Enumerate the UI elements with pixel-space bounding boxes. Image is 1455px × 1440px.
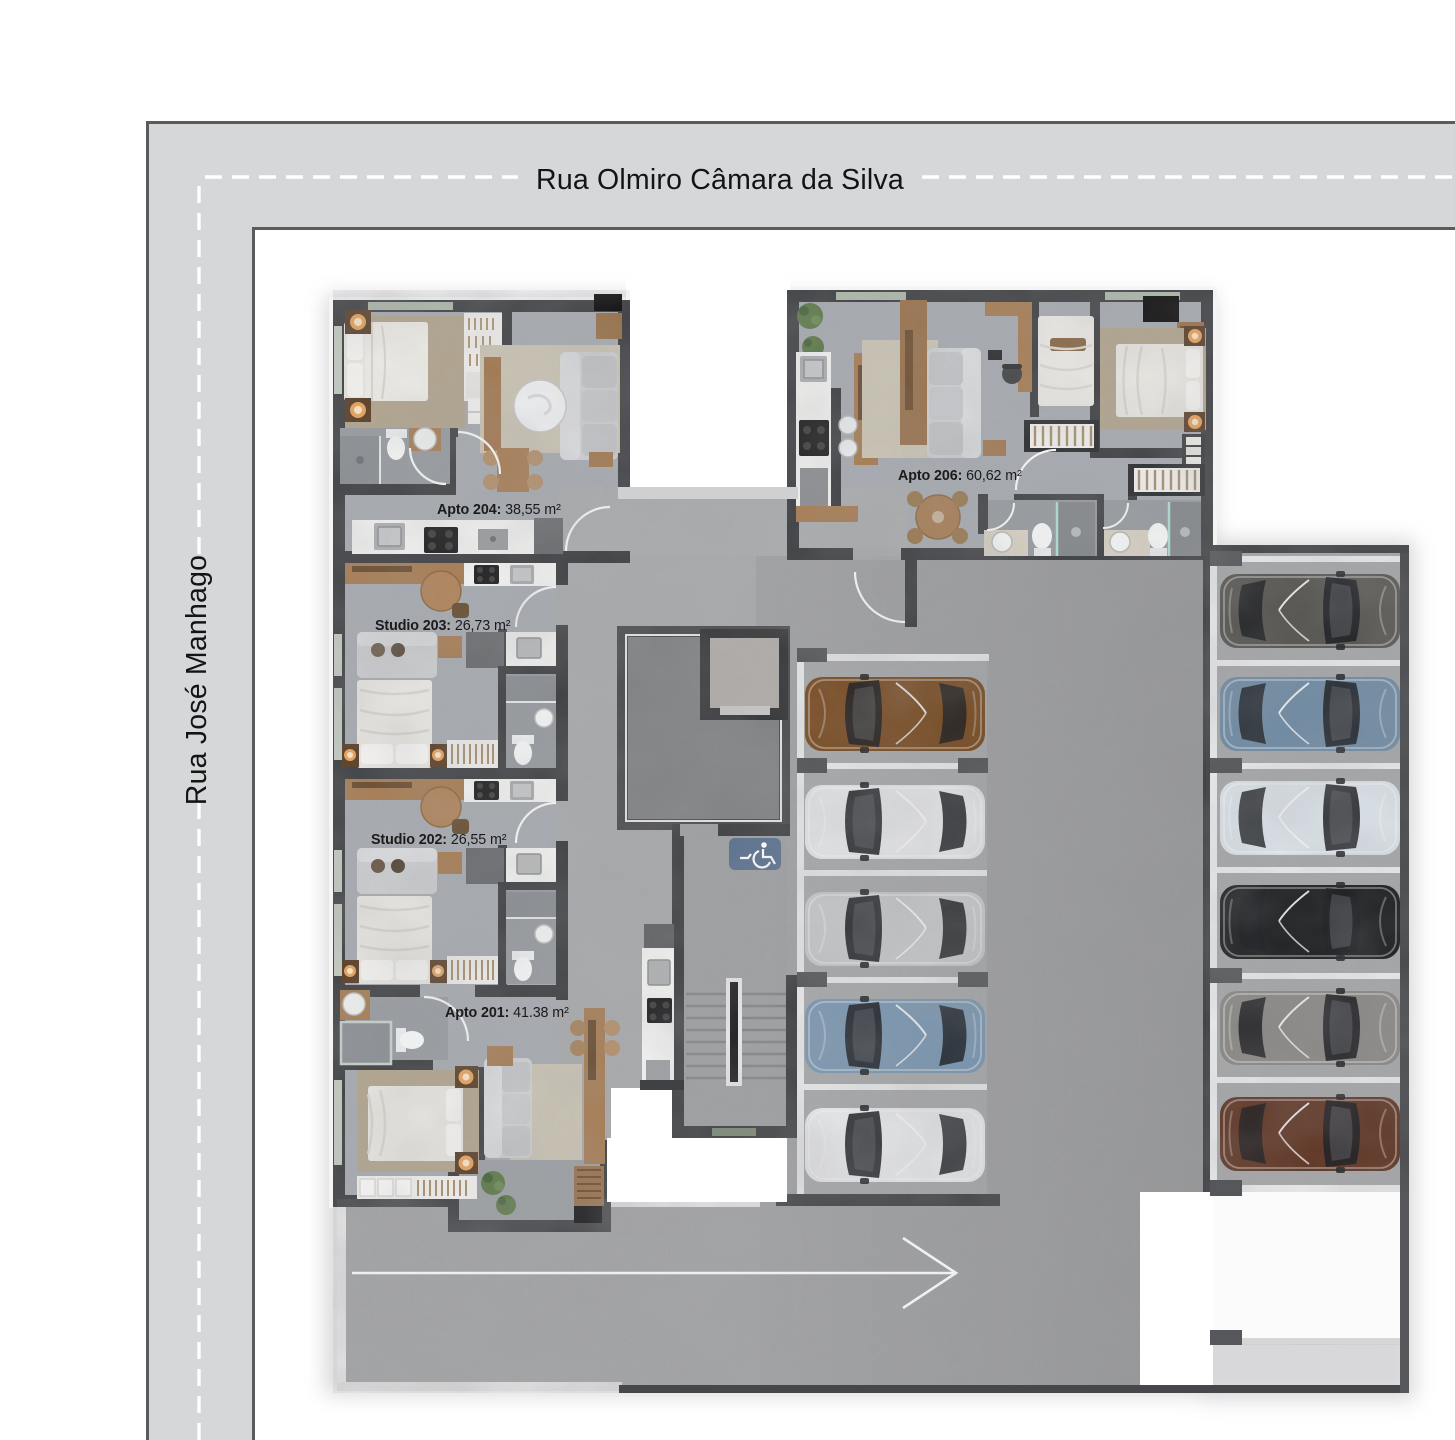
svg-text:Rua José Manhago: Rua José Manhago: [181, 555, 213, 805]
svg-text:Apto 206: 60,62 m²: Apto 206: 60,62 m²: [898, 468, 1022, 484]
svg-text:Apto 204: 38,55 m²: Apto 204: 38,55 m²: [437, 502, 561, 518]
svg-text:Rua Olmiro Câmara da Silva: Rua Olmiro Câmara da Silva: [536, 164, 904, 196]
svg-text:Studio 203: 26,73 m²: Studio 203: 26,73 m²: [375, 618, 511, 634]
svg-text:Apto 201: 41.38 m²: Apto 201: 41.38 m²: [445, 1005, 569, 1021]
svg-text:Studio 202: 26,55 m²: Studio 202: 26,55 m²: [371, 832, 507, 848]
